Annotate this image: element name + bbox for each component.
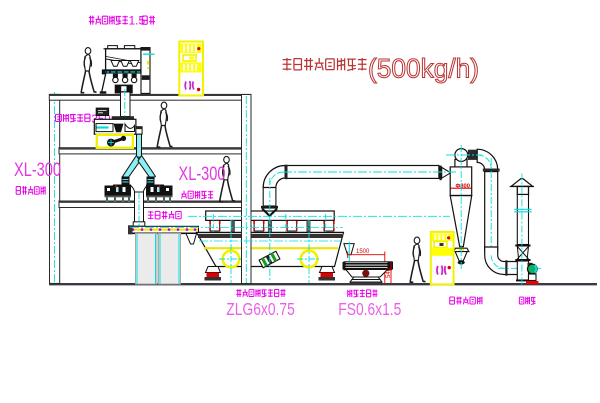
svg-text:540: 540 — [386, 267, 392, 278]
svg-text:XL-300: XL-300 — [179, 164, 226, 185]
svg-text:(500kg/h): (500kg/h) — [368, 54, 479, 84]
svg-text:1500: 1500 — [356, 249, 370, 255]
svg-text:Φ800: Φ800 — [456, 183, 470, 189]
svg-text:XL-300: XL-300 — [14, 160, 61, 181]
svg-text:ZLG6x0.75: ZLG6x0.75 — [226, 299, 294, 319]
svg-text:FS0.6x1.5: FS0.6x1.5 — [338, 299, 401, 319]
